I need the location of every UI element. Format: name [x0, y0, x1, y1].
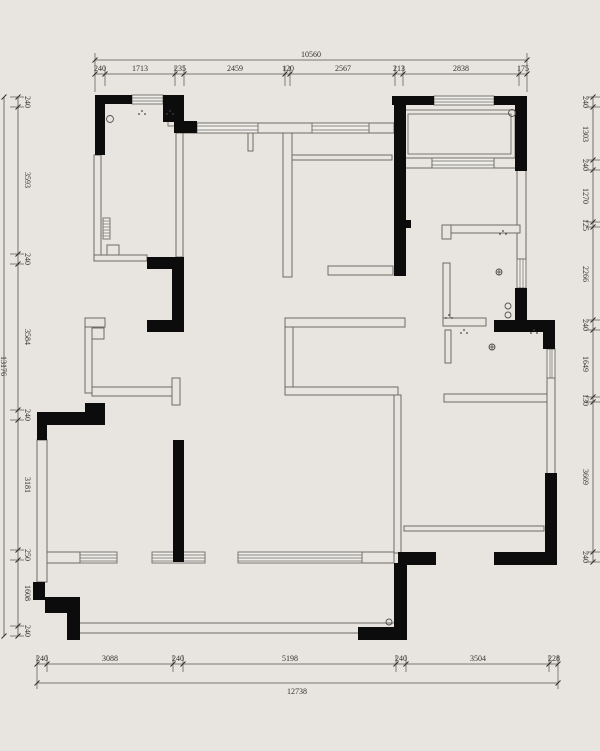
- dot-marks: [138, 110, 538, 334]
- window-strip: [312, 123, 369, 133]
- door-circle: [505, 312, 511, 318]
- dim-top-4: 120: [282, 64, 294, 73]
- dim-left-6: 250: [23, 549, 32, 561]
- dim-chain-bottom: 12738 240 3088 240 5198 240 3504 228: [35, 654, 561, 696]
- dim-bottom-4: 240: [395, 654, 407, 663]
- dim-right-0: 240: [581, 96, 590, 108]
- dim-bottom-6: 228: [548, 654, 560, 663]
- window-strip: [80, 552, 117, 563]
- dim-right-7: 1649: [581, 356, 590, 372]
- dim-top-7: 2838: [453, 64, 469, 73]
- dim-bottom-0: 240: [36, 654, 48, 663]
- door-circle: [509, 110, 516, 117]
- dim-left-2: 240: [23, 253, 32, 265]
- dim-right-9: 3669: [581, 469, 590, 485]
- window-strip: [517, 259, 526, 288]
- floor-plan-drawing: 10560 240 1713 235 2459 120 2567 213 283…: [0, 0, 600, 751]
- dim-right-6: 240: [581, 319, 590, 331]
- dim-left-0: 240: [23, 96, 32, 108]
- dim-chain-left: 240 3593 240 3584 240 3181 250 1608 240 …: [0, 95, 32, 639]
- dim-bottom-2: 240: [172, 654, 184, 663]
- dim-right-2: 240: [581, 159, 590, 171]
- dim-top-8: 175: [517, 64, 529, 73]
- dim-left-4: 240: [23, 409, 32, 421]
- dim-right-1: 1303: [581, 126, 590, 142]
- dim-top-5: 2567: [335, 64, 351, 73]
- dim-bottom-5: 3504: [470, 654, 486, 663]
- dim-right-4: 125: [581, 219, 590, 231]
- dim-right-10: 240: [581, 551, 590, 563]
- dim-top-6: 213: [393, 64, 405, 73]
- dim-left-total: 13176: [0, 356, 8, 376]
- dim-bottom-1: 3088: [102, 654, 118, 663]
- window-strip: [132, 95, 163, 104]
- window-strip: [547, 349, 555, 378]
- dim-top-2: 235: [174, 64, 186, 73]
- window-strip: [434, 96, 494, 105]
- dim-right-3: 1270: [581, 188, 590, 204]
- dim-right-5: 2266: [581, 266, 590, 282]
- plan-symbols: [107, 110, 538, 626]
- dim-top-3: 2459: [227, 64, 243, 73]
- dim-left-3: 3584: [23, 329, 32, 345]
- window-strip: [197, 123, 258, 133]
- door-circle: [505, 303, 511, 309]
- dim-left-1: 3593: [23, 172, 32, 188]
- radiator-hatch: [103, 218, 110, 239]
- window-strip: [432, 158, 494, 168]
- floor-plan-canvas: 10560 240 1713 235 2459 120 2567 213 283…: [0, 0, 600, 751]
- dim-left-8: 240: [23, 625, 32, 637]
- dim-bottom-3: 5198: [282, 654, 298, 663]
- dim-top-total: 10560: [301, 50, 321, 59]
- dim-chain-top: 10560 240 1713 235 2459 120 2567 213 283…: [93, 50, 530, 92]
- window-strip: [238, 552, 362, 563]
- drain-symbol: [489, 344, 495, 350]
- dim-top-1: 1713: [132, 64, 148, 73]
- dim-left-7: 1608: [23, 585, 32, 601]
- dim-left-5: 3181: [23, 477, 32, 493]
- drain-symbol: [496, 269, 502, 275]
- dim-top-0: 240: [94, 64, 106, 73]
- door-circle: [107, 116, 114, 123]
- dim-bottom-total: 12738: [287, 687, 307, 696]
- dim-right-8: 130: [581, 394, 590, 406]
- dim-chain-right: 240 1303 240 1270 125 2266 240 1649 130 …: [581, 95, 600, 565]
